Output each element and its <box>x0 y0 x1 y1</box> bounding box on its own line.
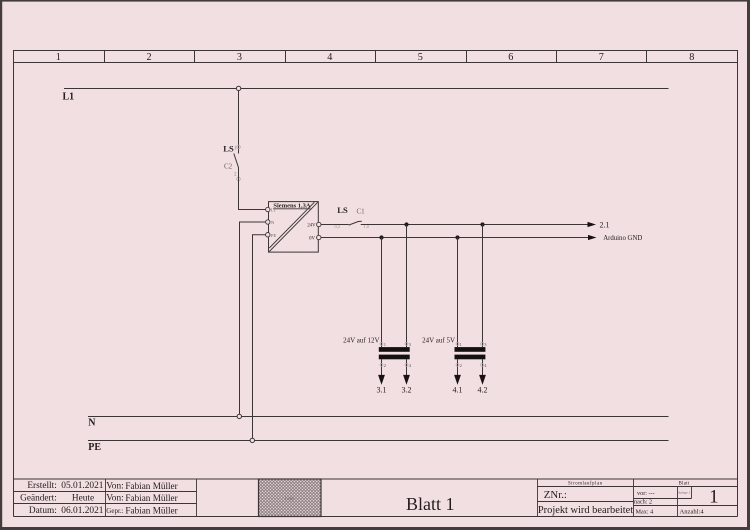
svg-text:C1: C1 <box>357 208 366 216</box>
svg-text:Gepr.:: Gepr.: <box>106 507 123 515</box>
svg-text:PE: PE <box>271 233 276 238</box>
svg-text:3.1: 3.1 <box>377 386 387 395</box>
svg-text:24V: 24V <box>307 224 316 229</box>
svg-text:4: 4 <box>327 52 332 63</box>
svg-text:L1: L1 <box>271 208 276 213</box>
svg-text:2: 2 <box>146 52 151 63</box>
svg-text:1: 1 <box>709 487 719 508</box>
svg-text:3: 3 <box>237 52 242 63</box>
svg-text:Max: 4: Max: 4 <box>636 508 654 515</box>
svg-text:Stromlaufplan: Stromlaufplan <box>568 481 603 486</box>
svg-text:1: 1 <box>460 342 462 347</box>
svg-text:05.01.2021: 05.01.2021 <box>61 481 104 491</box>
svg-text:1: 1 <box>384 342 386 347</box>
svg-text:6: 6 <box>508 52 513 63</box>
svg-text:Fabian Müller: Fabian Müller <box>125 493 177 503</box>
svg-text:Heute: Heute <box>72 493 94 503</box>
svg-text:nach: 2: nach: 2 <box>634 499 652 506</box>
svg-text:Datum:: Datum: <box>29 506 57 516</box>
svg-text:Fabian Müller: Fabian Müller <box>125 506 177 516</box>
svg-text:LS: LS <box>337 205 348 215</box>
svg-text:24V auf 12V: 24V auf 12V <box>343 337 379 345</box>
svg-text:Blatt: Blatt <box>679 481 690 486</box>
svg-text:2.1: 2.1 <box>600 220 610 229</box>
svg-text:Anlage 1: Anlage 1 <box>678 491 691 495</box>
svg-text:7: 7 <box>599 52 604 63</box>
svg-text:06.01.2021: 06.01.2021 <box>61 506 104 516</box>
svg-text:PE: PE <box>88 442 101 453</box>
svg-text:Arduino GND: Arduino GND <box>603 235 642 242</box>
svg-text:vor: ---: vor: --- <box>637 490 655 497</box>
svg-text:C2: C2 <box>224 163 233 171</box>
svg-text:Erstellt:: Erstellt: <box>27 481 56 491</box>
svg-text:0V: 0V <box>309 236 315 241</box>
svg-text:2: 2 <box>460 363 462 368</box>
svg-text:5: 5 <box>418 52 423 63</box>
svg-text:N: N <box>88 418 96 429</box>
svg-text:2: 2 <box>384 363 386 368</box>
svg-text:Anzahl:4: Anzahl:4 <box>680 509 705 516</box>
svg-text:L1: L1 <box>63 92 75 103</box>
svg-text:LS: LS <box>223 144 234 154</box>
svg-text:Logo: Logo <box>285 496 295 501</box>
svg-text:4.2: 4.2 <box>478 386 488 395</box>
svg-text:3.2: 3.2 <box>402 386 412 395</box>
svg-text:24V auf 5V: 24V auf 5V <box>422 337 455 345</box>
svg-text:4.1: 4.1 <box>453 386 463 395</box>
svg-text:Von:: Von: <box>106 481 123 491</box>
svg-text:Fabian Müller: Fabian Müller <box>125 481 177 491</box>
svg-text:8: 8 <box>689 52 694 63</box>
svg-text:Geändert:: Geändert: <box>20 493 57 503</box>
svg-text:1: 1 <box>56 52 61 63</box>
svg-text:Siemens 1,3A: Siemens 1,3A <box>273 202 311 209</box>
svg-text:ZNr.:: ZNr.: <box>544 489 567 501</box>
svg-text:Projekt wird bearbeitet: Projekt wird bearbeitet <box>538 505 633 516</box>
svg-text:Von:: Von: <box>106 494 123 504</box>
svg-text:Blatt 1: Blatt 1 <box>406 494 455 514</box>
